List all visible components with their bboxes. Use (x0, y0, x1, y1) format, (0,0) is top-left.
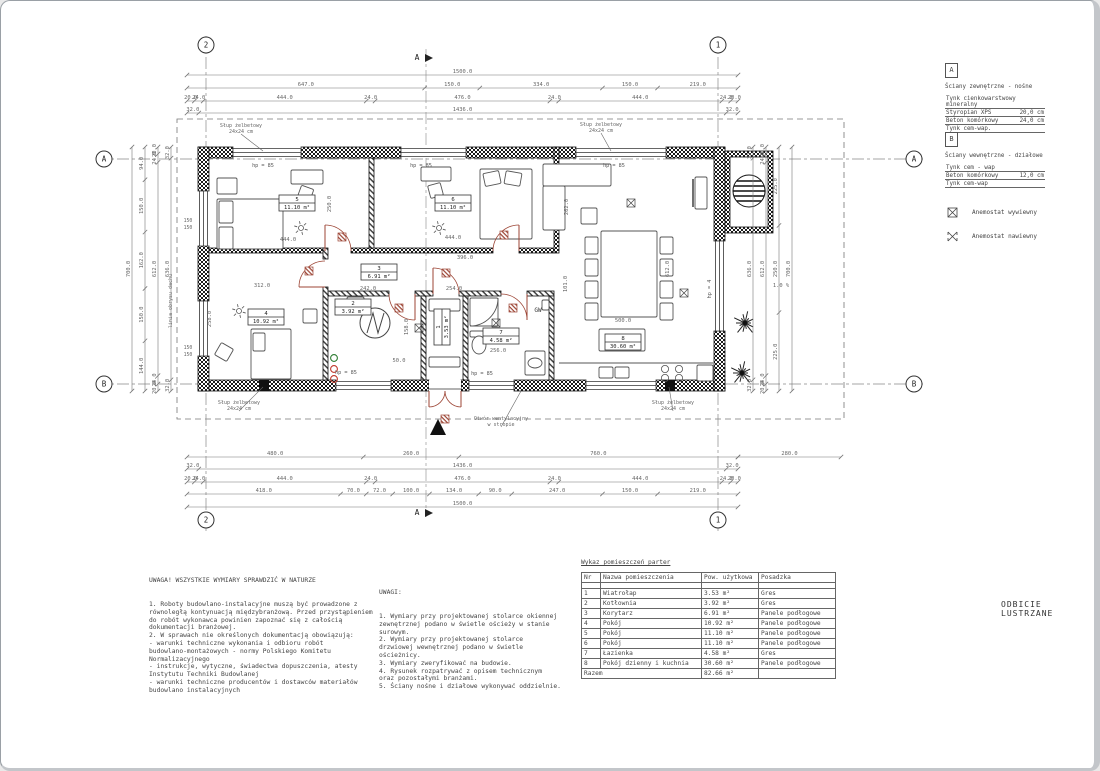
ceiling-lamp-icon (304, 223, 306, 225)
section-marker-arrow (425, 509, 433, 517)
table-cell: 6.91 m² (702, 609, 759, 619)
wall-layer-row: Tynk cem-wap (945, 180, 1045, 188)
wall-segment (198, 147, 209, 191)
room-area: 6.91 m² (368, 273, 391, 280)
dim-label: 94.0 (139, 157, 145, 170)
wall-segment (301, 147, 401, 158)
wall-type-b-layers: Tynk cem - wapBeton komórkowy12,0 cmTynk… (945, 164, 1045, 188)
room-number: 2 (351, 301, 354, 307)
table-row: 6Pokój11.10 m²Panele podłogowe (582, 639, 836, 649)
note-line: dokumentacji branżowej. (149, 624, 373, 632)
room-label: 410.92 m² (248, 309, 284, 325)
room-schedule: Wykaz pomieszczeń parter NrNazwa pomiesz… (581, 559, 836, 679)
table-row: 7Łazienka4.58 m²Gres (582, 649, 836, 659)
wall-segment (198, 356, 209, 391)
dim-label: 101.0 (563, 276, 569, 292)
wall-layer-row: Beton komórkowy24,0 cm (945, 117, 1045, 125)
dim-label: 150.0 (444, 82, 460, 88)
dim-label: 72.0 (373, 488, 386, 494)
table-footer-row: Razem82.66 m² (582, 669, 836, 679)
room-area: 10.92 m² (253, 318, 279, 325)
wall-layer-name: Tynk cienkowarstwowy mineralny (946, 96, 1044, 108)
table-cell: Pow. użytkowa (702, 573, 759, 583)
dim-label: 256.0 (490, 348, 506, 354)
table-cell: 5 (582, 629, 601, 639)
dim-label: 24.0 (192, 476, 205, 482)
table-cell: Nazwa pomieszczenia (601, 573, 702, 583)
desk-room6 (421, 167, 451, 181)
dim-label: 334.0 (533, 82, 549, 88)
table-cell: 3.92 m² (702, 599, 759, 609)
dim-label: 24.0 (152, 152, 158, 165)
wall-layer-name: Tynk cem-wap (946, 181, 988, 187)
table-cell: Panele podłogowe (759, 639, 836, 649)
wall-segment (714, 147, 725, 241)
dim-label: 100.0 (403, 488, 419, 494)
table-cell: Posadzka (759, 573, 836, 583)
dim-label: 225.0 (773, 178, 779, 194)
room-schedule-title: Wykaz pomieszczeń parter (581, 559, 836, 566)
dining-table (601, 231, 657, 317)
section-marker-label: A (415, 53, 420, 62)
room-label: 23.92 m² (335, 299, 371, 315)
pillow (219, 227, 233, 249)
dim-label: 444.0 (277, 95, 293, 101)
sill-height-label: hp = 85 (471, 371, 493, 377)
axis-label: 2 (204, 516, 209, 525)
room-label: 511.10 m² (279, 195, 315, 211)
note-line: budowlano-montażowych - normy Polskiego … (149, 648, 373, 656)
dim-label: 612.0 (152, 261, 158, 277)
section-marker-arrow (425, 54, 433, 62)
dim-label: 250.0 (773, 261, 779, 277)
dim-label: 242.0 (360, 286, 376, 292)
mirror-note: ODBICIE LUSTRZANE (1001, 600, 1094, 618)
shower (470, 298, 498, 326)
side-table (581, 208, 597, 224)
dim-label: 700.0 (786, 261, 792, 277)
dim-label: 476.0 (454, 476, 470, 482)
wall-segment (198, 246, 209, 301)
kitchen-sink (599, 367, 613, 378)
dim-label: 418.0 (256, 488, 272, 494)
wall-type-b-symbol: B (945, 132, 958, 147)
door-tag (305, 267, 313, 275)
note-line: 1. Wymiary przy projektowanej stolarce o… (379, 613, 561, 621)
dim-label: 90.0 (489, 488, 502, 494)
note-line: 2. W sprawach nie określonych dokumentac… (149, 632, 373, 640)
table-cell: Pokój (601, 619, 702, 629)
room-number: 5 (295, 197, 298, 203)
door-tag (441, 415, 449, 423)
note-line: ościeżnicy. (379, 652, 561, 660)
dim-label: 20.0 (152, 381, 158, 394)
remarks-notes-lines: 1. Wymiary przy projektowanej stolarce o… (379, 613, 561, 691)
legend-wall-type-a: A Ściany zewnętrzne - nośne Tynk cienkow… (945, 63, 1045, 133)
dim-label: 219.0 (690, 488, 706, 494)
table-cell: 30.60 m² (702, 659, 759, 669)
wall-layer-thickness: 24,0 cm (1020, 118, 1044, 124)
table-cell: Wiatrołap (601, 589, 702, 599)
wall-layer-row: Beton komórkowy12,0 cm (945, 172, 1045, 180)
sill-height-label: hp = 85 (335, 370, 357, 376)
table-cell: 2 (582, 599, 601, 609)
table-cell: 7 (582, 649, 601, 659)
table-row: 8Pokój dzienny i kuchnia30.60 m²Panele p… (582, 659, 836, 669)
room-area: 4.58 m² (490, 337, 513, 344)
wall-layer-thickness: 12,0 cm (1020, 173, 1044, 179)
table-cell: 11.10 m² (702, 629, 759, 639)
dim-label: 444.0 (632, 476, 648, 482)
wall-layer-name: Beton komórkowy (946, 118, 998, 124)
dim-label: 444.0 (632, 95, 648, 101)
dim-label: 50.0 (393, 358, 406, 364)
ceiling-lamp-icon (243, 312, 246, 313)
note-line: Instytutu Techniki Budowlanej (149, 671, 373, 679)
dim-label: 444.0 (280, 237, 296, 243)
room-label: 611.10 m² (435, 195, 471, 211)
door-tag (509, 304, 517, 312)
tv-cabinet (695, 177, 707, 209)
room-label: 13.53 m² (434, 309, 450, 345)
dim-label: 476.0 (454, 95, 470, 101)
ceiling-lamp-icon (443, 229, 446, 230)
wall-segment (328, 291, 389, 296)
stove-burner (675, 365, 682, 372)
wardrobe-room5 (217, 178, 237, 194)
table-row: 1Wiatrołap3.53 m²Gres (582, 589, 836, 599)
wall-type-a-layers: Tynk cienkowarstwowy mineralnyStyropian … (945, 95, 1045, 133)
dim-label: 312.0 (254, 283, 270, 289)
stove-burner (661, 365, 668, 372)
table-cell: Panele podłogowe (759, 629, 836, 639)
table-cell: Panele podłogowe (759, 609, 836, 619)
ceiling-lamp-icon (437, 226, 442, 231)
table-cell: Panele podłogowe (759, 659, 836, 669)
section-marker-label: A (415, 508, 420, 517)
note-line: 1. Roboty budowlano-instalacyjne muszą b… (149, 601, 373, 609)
note-line: 3. Wymiary zweryfikować na budowie. (379, 660, 561, 668)
ceiling-lamp-icon (237, 309, 242, 314)
room-label: 830.60 m² (605, 334, 641, 350)
table-cell: Korytarz (601, 609, 702, 619)
dim-label: 396.0 (457, 255, 473, 261)
general-notes-title: UWAGA! WSZYSTKIE WYMIARY SPRAWDZIĆ W NAT… (149, 577, 373, 585)
dim-label: 150.0 (622, 82, 638, 88)
door-swing-arc (445, 391, 461, 407)
gas-heater (542, 300, 549, 310)
window-size-tag: 150 (184, 352, 193, 358)
table-cell: Gres (759, 589, 836, 599)
anemostat-supply-icon (947, 231, 958, 242)
table-cell: 3.53 m² (702, 589, 759, 599)
dim-label: 20.0 (728, 95, 741, 101)
dim-label: 144.0 (139, 358, 145, 374)
note-line: 2. Wymiary przy projektowanej stolarce (379, 636, 561, 644)
dining-chair (585, 259, 598, 276)
table-cell: Pokój (601, 639, 702, 649)
window-size-tag: 150 (184, 225, 193, 231)
table-row: 2Kotłownia3.92 m²Gres (582, 599, 836, 609)
table-cell: Nr (582, 573, 601, 583)
wall-layer-row: Styropian XPS20,0 cm (945, 109, 1045, 117)
table-cell: 11.10 m² (702, 639, 759, 649)
ceiling-lamp-icon (432, 226, 435, 227)
table-cell: 4.58 m² (702, 649, 759, 659)
room-number: 1 (436, 325, 442, 328)
wall-layer-name: Beton komórkowy (946, 173, 998, 179)
wall-layer-row: Tynk cienkowarstwowy mineralny (945, 95, 1045, 109)
axis-label: 2 (204, 41, 209, 50)
dim-label: 636.0 (165, 261, 171, 277)
gas-water-label: GW (534, 307, 542, 314)
wall-segment (461, 380, 469, 391)
wall-segment (714, 331, 725, 391)
remarks-notes: UWAGI: 1. Wymiary przy projektowanej sto… (379, 573, 561, 707)
note-line: do robót wykonawca powinien zapoznać się… (149, 617, 373, 625)
dim-label: 500.0 (615, 318, 631, 324)
wall-segment (549, 296, 554, 380)
dim-label: 250.0 (327, 196, 333, 212)
table-cell: 1 (582, 589, 601, 599)
dim-label: 647.0 (298, 82, 314, 88)
ceiling-lamp-icon (232, 309, 235, 310)
dim-label: 32.0 (165, 146, 171, 159)
dim-label: 32.0 (726, 463, 739, 469)
wall-layer-row: Tynk cem - wap (945, 164, 1045, 172)
table-cell: Kotłownia (601, 599, 702, 609)
legend-anemostat-supply: Anemostat nawiewny (947, 231, 1037, 242)
dim-label: 254.0 (446, 286, 462, 292)
ceiling-lamp-icon (234, 314, 236, 316)
ceiling-lamp-icon (240, 315, 241, 318)
dim-label: 444.0 (445, 235, 461, 241)
dim-label: 760.0 (590, 451, 606, 457)
dim-label: 262.0 (564, 199, 570, 215)
callout-text: w stropie (487, 422, 514, 428)
dim-label: 225.0 (773, 344, 779, 360)
door-swing-arc (429, 391, 445, 407)
wall-segment (463, 296, 468, 380)
table-row: 4Pokój10.92 m²Panele podłogowe (582, 619, 836, 629)
room-area: 11.10 m² (440, 204, 466, 211)
wall-segment (351, 248, 493, 253)
table-cell: Panele podłogowe (759, 619, 836, 629)
room-area: 3.53 m² (443, 316, 450, 339)
ceiling-lamp-icon (299, 221, 300, 224)
table-cell (759, 669, 836, 679)
plant (745, 325, 746, 329)
sofa (543, 164, 611, 186)
door-tag (338, 233, 346, 241)
water-supply-point (331, 355, 338, 362)
note-line: - warunki techniczne producentów i dosta… (149, 679, 373, 687)
table-cell: 4 (582, 619, 601, 629)
dim-label: 24.0 (364, 95, 377, 101)
axis-label: A (912, 155, 917, 164)
dim-label: 150.0 (622, 488, 638, 494)
room-schedule-table: NrNazwa pomieszczeniaPow. użytkowaPosadz… (581, 572, 836, 679)
wall-segment (323, 287, 328, 380)
dining-chair (660, 237, 673, 254)
table-cell: Pokój dzienny i kuchnia (601, 659, 702, 669)
note-line: 5. Ściany nośne i działowe wykonywać odd… (379, 683, 561, 691)
dim-label: 444.0 (277, 476, 293, 482)
table-cell: Gres (759, 649, 836, 659)
dim-label: 24.0 (364, 476, 377, 482)
note-line: równoległą kontynuacją międzybranżową. P… (149, 609, 373, 617)
table-row: 3Korytarz6.91 m²Panele podłogowe (582, 609, 836, 619)
dim-label: 1436.0 (453, 107, 472, 113)
pillow (504, 171, 522, 187)
remarks-notes-title: UWAGI: (379, 589, 561, 597)
wall-type-a-title: Ściany zewnętrzne - nośne (945, 84, 1045, 90)
axis-label: B (102, 380, 107, 389)
table-footer-label: Razem (582, 669, 702, 679)
note-line: oraz pozostałymi branżami. (379, 675, 561, 683)
anemostat-icon (627, 199, 635, 207)
sill-height-label: hp = 85 (410, 163, 432, 169)
callout-text: 24x24 cm (229, 129, 253, 135)
legend-anemostat-exhaust-label: Anemostat wywiewny (972, 209, 1037, 216)
wall-type-b-title: Ściany wewnętrzne - działowe (945, 153, 1045, 159)
dim-label: 32.0 (165, 379, 171, 392)
dim-label: 20.0 (760, 381, 766, 394)
table-cell: Łazienka (601, 649, 702, 659)
callout-text: 24x24 cm (589, 128, 613, 134)
note-line: drzwiowej wewnętrznej podano w świetle (379, 644, 561, 652)
wall-segment (369, 158, 374, 248)
plant (742, 375, 743, 379)
room-number: 3 (377, 266, 380, 272)
wall-segment (459, 291, 501, 296)
ceiling-lamp-icon (302, 232, 303, 235)
dim-label: 70.0 (347, 488, 360, 494)
table-cell: 10.92 m² (702, 619, 759, 629)
dim-label: 1436.0 (453, 463, 472, 469)
anemostat-icon (680, 289, 688, 297)
dim-label: 158.0 (404, 319, 410, 335)
door-tag (500, 231, 508, 239)
dining-chair (585, 237, 598, 254)
dim-label: 1500.0 (453, 69, 472, 75)
wall-layer-thickness: 20,0 cm (1020, 110, 1044, 116)
room-number: 6 (451, 197, 454, 203)
table-cell: Gres (759, 599, 836, 609)
callout-text: 24x24 cm (661, 406, 685, 412)
wall-type-a-symbol: A (945, 63, 958, 78)
drawing-sheet: linia obrysu dachu2121AABBAA13.53 m²23.9… (0, 0, 1100, 771)
door-tag (395, 304, 403, 312)
wall-segment (421, 296, 426, 380)
table-cell: 6 (582, 639, 601, 649)
dim-label: 258.0 (207, 311, 213, 327)
table-cell: Pokój (601, 629, 702, 639)
ceiling-lamp-icon (442, 223, 444, 225)
callout-text: Otwór wentylacyjny (474, 415, 528, 422)
room-label: 36.91 m² (361, 264, 397, 280)
ceiling-lamp-icon (294, 226, 297, 227)
legend-wall-type-b: B Ściany wewnętrzne - działowe Tynk cem … (945, 132, 1045, 188)
pillow (483, 170, 501, 186)
ceiling-lamp-icon (305, 229, 308, 230)
pillow (253, 333, 265, 351)
legend-anemostat-supply-label: Anemostat nawiewny (972, 233, 1037, 240)
note-line: zewnętrznej podano w świetle ościeży w s… (379, 621, 561, 629)
dim-label: 612.0 (665, 261, 671, 277)
dim-label: 32.0 (747, 146, 753, 159)
dim-label: 24.0 (760, 152, 766, 165)
note-line: - warunki techniczne wykonania i odbioru… (149, 640, 373, 648)
general-notes-lines: 1. Roboty budowlano-instalacyjne muszą b… (149, 601, 373, 695)
note-line: surowym. (379, 629, 561, 637)
wall-layer-name: Styropian XPS (946, 110, 991, 116)
ceiling-lamp-icon (437, 221, 438, 224)
axis-label: 1 (716, 41, 721, 50)
dining-chair (660, 303, 673, 320)
table-cell: 3 (582, 609, 601, 619)
wall-segment (514, 380, 586, 391)
wall-segment (466, 147, 576, 158)
wall-segment (519, 248, 554, 253)
dim-label: 134.0 (446, 488, 462, 494)
fridge (697, 365, 713, 381)
dim-label: 260.0 (403, 451, 419, 457)
legend-symbols: Anemostat wywiewny Anemostat nawiewny (947, 207, 1037, 255)
dim-label: 219.0 (690, 82, 706, 88)
dim-label: 150.0 (139, 307, 145, 323)
kitchen-sink (615, 367, 629, 378)
room-area: 3.92 m² (342, 308, 365, 315)
dim-label: 32.0 (726, 107, 739, 113)
sill-height-label: hp = 85 (603, 163, 625, 169)
dining-chair (660, 281, 673, 298)
dim-label: 24.0 (548, 476, 561, 482)
note-line: 4. Rysunek rozpatrywać z opisem technicz… (379, 668, 561, 676)
chair-room4 (214, 342, 233, 361)
ceiling-lamp-icon (299, 226, 304, 231)
table-footer-total: 82.66 m² (702, 669, 759, 679)
wall-layer-name: Tynk cem - wap (946, 165, 995, 171)
table-room4 (303, 309, 317, 323)
note-line: - instrukcje, wytyczne, świadectwa dopus… (149, 663, 373, 671)
dim-label: 247.0 (549, 488, 565, 494)
sill-height-label: hp = 85 (252, 163, 274, 169)
washbasin (528, 358, 542, 368)
dim-label: 24.0 (192, 95, 205, 101)
dim-label: 1500.0 (453, 501, 472, 507)
callout-text: 24x24 cm (227, 406, 251, 412)
slope-label: 1.0 % (773, 283, 790, 289)
window-size-tag: 150 (184, 345, 193, 351)
dim-label: 700.0 (126, 261, 132, 277)
ceiling-lamp-icon (296, 231, 298, 233)
room-area: 30.60 m² (610, 343, 636, 350)
wall-segment (415, 291, 433, 296)
dim-label: 32.0 (747, 379, 753, 392)
axis-label: 1 (716, 516, 721, 525)
dim-label: 20.0 (728, 476, 741, 482)
general-notes: UWAGA! WSZYSTKIE WYMIARY SPRAWDZIĆ W NAT… (149, 561, 373, 710)
pillow (219, 201, 233, 223)
room-label: 74.58 m² (483, 328, 519, 344)
ceiling-lamp-icon (440, 232, 441, 235)
room-area: 11.10 m² (284, 204, 310, 211)
room-number: 7 (499, 330, 502, 336)
dim-label: 32.0 (186, 463, 199, 469)
door-tag (442, 269, 450, 277)
axis-label: A (102, 155, 107, 164)
